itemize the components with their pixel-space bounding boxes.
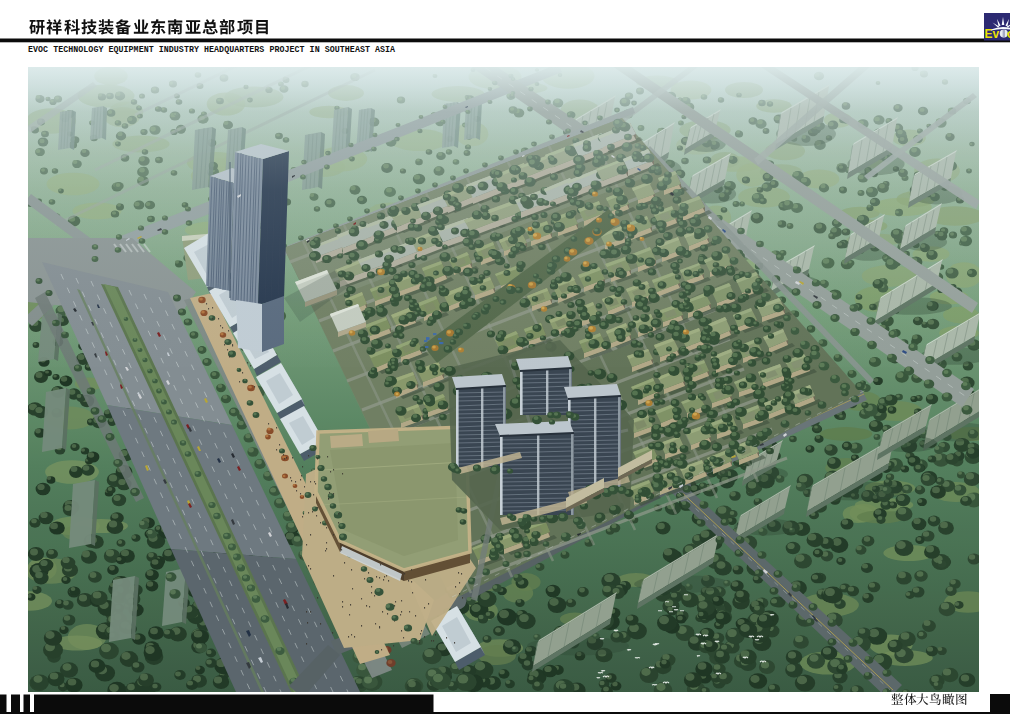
svg-text:Ev: Ev bbox=[985, 27, 1000, 41]
svg-text:EVOC TECHNOLOGY EQUIPMENT INDU: EVOC TECHNOLOGY EQUIPMENT INDUSTRY HEADQ… bbox=[28, 45, 395, 54]
